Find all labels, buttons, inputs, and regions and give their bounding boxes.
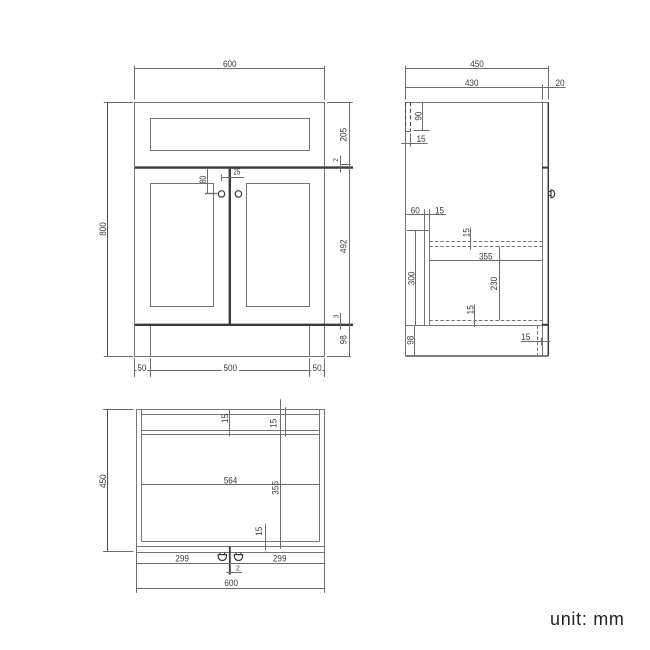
svg-text:600: 600: [224, 578, 238, 588]
svg-text:800: 800: [98, 222, 108, 236]
svg-text:430: 430: [465, 78, 479, 88]
svg-text:50: 50: [137, 363, 146, 373]
svg-text:450: 450: [98, 474, 108, 488]
svg-text:299: 299: [273, 554, 287, 564]
svg-text:15: 15: [466, 305, 476, 314]
svg-text:25: 25: [233, 168, 240, 177]
svg-text:230: 230: [489, 277, 499, 291]
svg-text:15: 15: [462, 228, 472, 237]
svg-text:20: 20: [555, 78, 564, 88]
svg-text:299: 299: [175, 554, 189, 564]
svg-text:15: 15: [254, 527, 264, 536]
svg-text:15: 15: [269, 419, 279, 428]
svg-text:unit: mm: unit: mm: [550, 609, 625, 629]
svg-text:60: 60: [411, 205, 420, 215]
svg-text:205: 205: [338, 128, 348, 142]
svg-text:2: 2: [331, 158, 340, 162]
svg-text:600: 600: [223, 59, 237, 69]
svg-text:98: 98: [338, 335, 348, 344]
svg-text:450: 450: [470, 59, 484, 69]
svg-text:80: 80: [198, 176, 208, 184]
svg-text:492: 492: [338, 239, 348, 253]
svg-text:15: 15: [435, 205, 444, 215]
svg-text:15: 15: [220, 414, 230, 423]
svg-text:15: 15: [416, 134, 425, 144]
svg-text:15: 15: [521, 332, 530, 342]
svg-text:90: 90: [414, 112, 424, 121]
svg-text:355: 355: [479, 251, 493, 261]
svg-text:355: 355: [271, 481, 281, 495]
svg-text:98: 98: [406, 336, 416, 345]
svg-text:3: 3: [331, 314, 340, 318]
svg-text:500: 500: [224, 363, 238, 373]
svg-text:300: 300: [407, 272, 417, 286]
svg-text:50: 50: [313, 363, 322, 373]
svg-text:2: 2: [236, 563, 240, 572]
svg-text:564: 564: [224, 475, 238, 485]
